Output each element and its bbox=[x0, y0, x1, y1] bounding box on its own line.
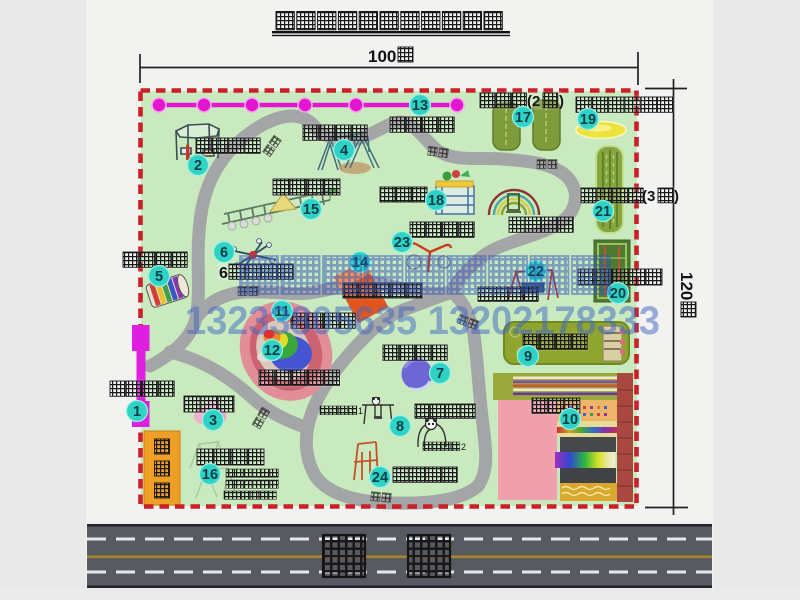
svg-text:12: 12 bbox=[264, 343, 280, 359]
svg-text:8: 8 bbox=[396, 419, 404, 435]
svg-text:3: 3 bbox=[209, 413, 217, 429]
svg-text:(3: (3 bbox=[642, 188, 655, 205]
svg-text:13233805635 13202178333: 13233805635 13202178333 bbox=[185, 299, 660, 343]
svg-text:100: 100 bbox=[368, 47, 396, 66]
svg-text:1: 1 bbox=[133, 404, 141, 420]
svg-text:13: 13 bbox=[412, 98, 428, 114]
svg-text:2: 2 bbox=[194, 158, 202, 174]
svg-text:23: 23 bbox=[394, 235, 410, 251]
svg-text:21: 21 bbox=[595, 204, 611, 220]
svg-text:6: 6 bbox=[219, 265, 228, 282]
svg-text:16: 16 bbox=[202, 467, 218, 483]
svg-text:): ) bbox=[674, 188, 679, 205]
svg-text:5: 5 bbox=[155, 269, 163, 285]
svg-text:19: 19 bbox=[580, 112, 596, 128]
svg-text:15: 15 bbox=[303, 202, 319, 218]
svg-text:1: 1 bbox=[358, 406, 363, 416]
svg-text:6: 6 bbox=[220, 245, 228, 261]
svg-text:24: 24 bbox=[372, 470, 388, 486]
svg-text:9: 9 bbox=[524, 349, 532, 365]
svg-text:17: 17 bbox=[515, 110, 531, 126]
svg-text:2: 2 bbox=[461, 442, 466, 452]
svg-text:120: 120 bbox=[677, 272, 696, 300]
svg-text:4: 4 bbox=[340, 143, 348, 159]
svg-text:10: 10 bbox=[562, 412, 578, 428]
svg-text:): ) bbox=[559, 93, 564, 110]
svg-text:(2: (2 bbox=[527, 93, 540, 110]
svg-text:7: 7 bbox=[436, 366, 444, 382]
svg-text:18: 18 bbox=[428, 193, 444, 209]
